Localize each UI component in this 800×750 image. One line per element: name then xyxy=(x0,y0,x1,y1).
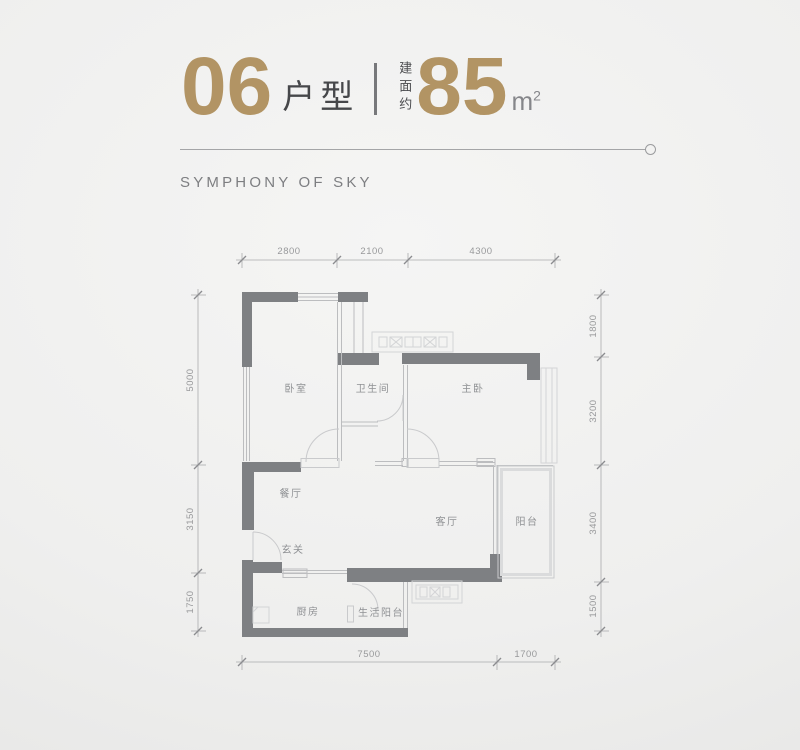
area-unit-sup: 2 xyxy=(533,87,541,103)
room-label-living: 客厅 xyxy=(436,515,459,528)
utility-door-arc xyxy=(352,584,378,610)
dim-left-3: 1750 xyxy=(185,590,196,613)
dim-right-2: 3200 xyxy=(588,399,599,422)
area-value: 85 xyxy=(416,54,507,120)
unit-type-label: 户型 xyxy=(282,70,358,118)
tagline: SYMPHONY OF SKY xyxy=(180,174,373,191)
area-unit: m2 xyxy=(511,86,540,117)
dim-top-1: 2800 xyxy=(277,246,300,257)
room-label-bedroom: 卧室 xyxy=(285,382,308,395)
dimension-chain-left: 5000 3150 1750 xyxy=(185,289,206,637)
floorplan: 2800 2100 4300 7500 1700 5000 3150 1750 xyxy=(170,235,665,680)
room-labels: 卧室 卫生间 主卧 餐厅 客厅 阳台 玄关 厨房 生活阳台 xyxy=(280,382,539,619)
room-label-dining: 餐厅 xyxy=(280,487,303,500)
dim-right-1: 1800 xyxy=(588,314,599,337)
room-label-entry: 玄关 xyxy=(282,543,305,556)
windows-layer xyxy=(244,294,558,578)
dim-top-2: 2100 xyxy=(360,246,383,257)
room-label-balcony: 阳台 xyxy=(516,515,539,528)
area-prefix: 建面约 xyxy=(397,61,411,115)
master-door-arc xyxy=(407,429,439,461)
area-unit-m: m xyxy=(511,86,533,116)
master-door-leaf xyxy=(407,459,439,468)
dim-bottom-2: 1700 xyxy=(514,649,537,660)
doors-layer xyxy=(253,395,439,622)
entry-door-arc xyxy=(253,532,281,560)
unit-number: 06 xyxy=(181,54,272,120)
room-label-master-bedroom: 主卧 xyxy=(462,382,485,395)
dim-top-3: 4300 xyxy=(469,246,492,257)
dimension-chain-bottom: 7500 1700 xyxy=(236,649,561,670)
room-label-utility-balcony: 生活阳台 xyxy=(358,606,404,619)
dim-bottom-1: 7500 xyxy=(357,649,380,660)
dim-left-2: 3150 xyxy=(185,507,196,530)
utility-door-leaf xyxy=(348,606,354,622)
dim-left-1: 5000 xyxy=(185,368,196,391)
header-divider xyxy=(374,63,377,115)
header-rule-line xyxy=(180,149,646,150)
unit-header: 06 户型 建面约 85 m2 xyxy=(181,54,541,120)
dimension-chain-top: 2800 2100 4300 xyxy=(236,246,561,268)
room-label-bathroom: 卫生间 xyxy=(356,382,391,395)
dim-right-4: 1500 xyxy=(588,594,599,617)
bedroom-door-arc xyxy=(306,429,339,462)
rule-end-circle xyxy=(645,144,656,155)
room-label-kitchen: 厨房 xyxy=(297,605,320,618)
dimension-chain-right: 1800 3200 3400 1500 xyxy=(588,289,609,637)
dim-right-3: 3400 xyxy=(588,511,599,534)
bay-window xyxy=(541,368,557,463)
bathroom-door-arc xyxy=(377,395,403,421)
bedroom-door-leaf xyxy=(301,459,339,468)
